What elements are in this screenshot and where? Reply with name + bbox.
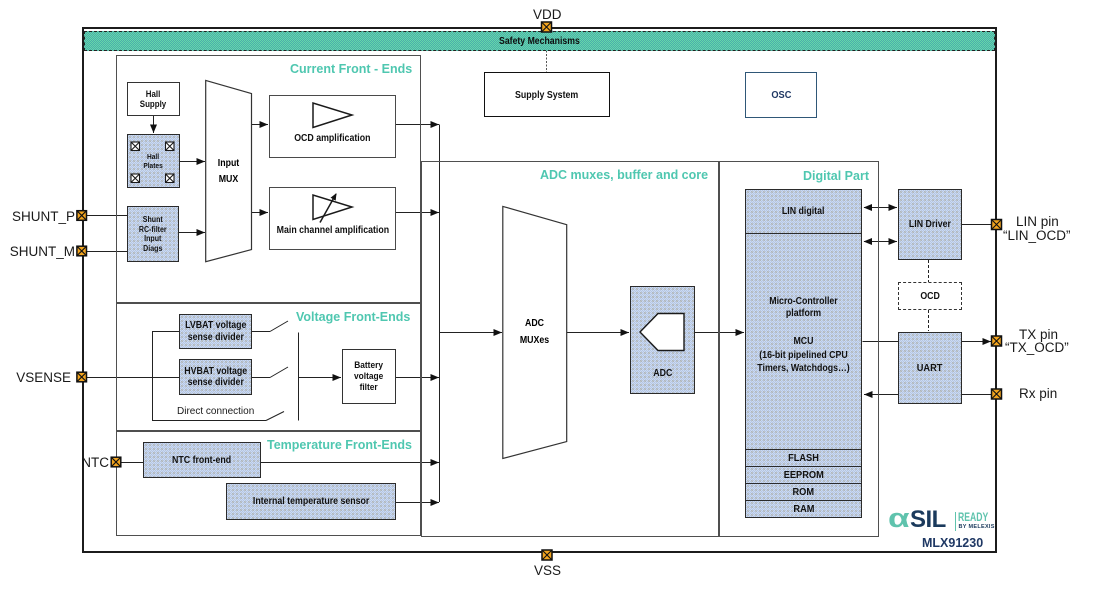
svg-text:ADC: ADC (525, 316, 544, 328)
svg-text:MUX: MUX (219, 172, 239, 184)
svg-text:MUXes: MUXes (520, 333, 549, 345)
svg-text:Input: Input (218, 156, 240, 168)
